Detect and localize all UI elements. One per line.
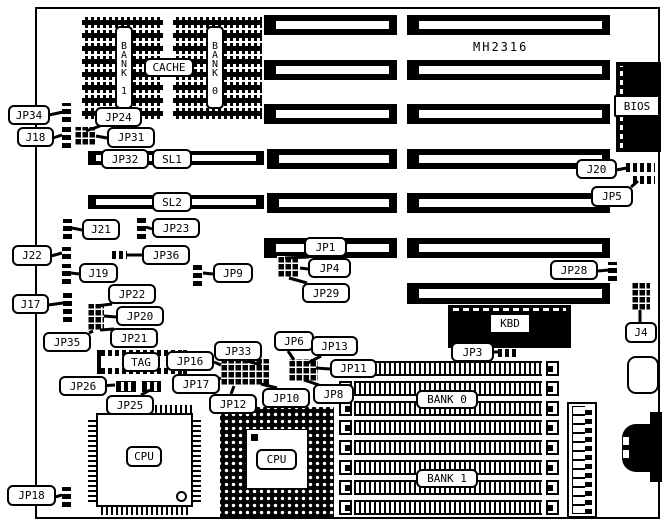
simm-socket xyxy=(337,440,561,456)
label-jp28: JP28 xyxy=(550,260,598,280)
isa-slot-2-long xyxy=(407,60,610,80)
jumper-j19 xyxy=(62,264,71,284)
jumper-jp23 xyxy=(137,217,146,239)
isa-slot-1-long xyxy=(407,15,610,35)
jumper-jp3 xyxy=(498,349,517,357)
label-jp16: JP16 xyxy=(166,351,214,371)
qfp-pins-left xyxy=(88,418,96,502)
label-jp22: JP22 xyxy=(108,284,156,304)
simm-bank1-label: BANK 1 xyxy=(416,469,478,488)
qfp-pins-bottom xyxy=(101,507,188,515)
jumper-jp31-jp24 xyxy=(74,127,96,146)
label-j4: J4 xyxy=(625,322,657,343)
label-jp35: JP35 xyxy=(43,332,91,352)
label-jp26: JP26 xyxy=(59,376,107,396)
label-j18: J18 xyxy=(17,127,54,147)
jumper-jp9 xyxy=(193,265,202,286)
cpu-pga-label: CPU xyxy=(256,449,297,470)
jumper-jp36 xyxy=(112,251,127,259)
label-jp36: JP36 xyxy=(142,245,190,265)
label-jp24: JP24 xyxy=(95,107,142,127)
isa-slot-2-short xyxy=(264,60,397,80)
power-connector xyxy=(567,402,597,518)
label-jp21: JP21 xyxy=(110,328,158,348)
label-jp10: JP10 xyxy=(262,388,310,408)
label-jp4: JP4 xyxy=(308,258,351,278)
tag-label: TAG xyxy=(122,352,160,372)
label-jp1: JP1 xyxy=(304,237,347,257)
jumper-jp18 xyxy=(62,487,71,507)
din-notch xyxy=(623,450,629,458)
label-jp8: JP8 xyxy=(313,384,354,404)
label-jp23: JP23 xyxy=(152,218,200,238)
jumper-jp20-cluster xyxy=(87,304,104,331)
label-jp34: JP34 xyxy=(8,105,50,125)
isa-slot-3-long xyxy=(407,104,610,124)
label-jp31: JP31 xyxy=(107,127,155,148)
kbd-label: KBD xyxy=(489,313,531,334)
label-jp20: JP20 xyxy=(116,306,164,326)
cache-bank1-label: BANK 1 xyxy=(115,26,133,109)
jumper-jp26 xyxy=(116,381,136,392)
cache-chip-row xyxy=(173,108,262,119)
simm-socket xyxy=(337,500,561,516)
jumper-j20 xyxy=(626,163,655,172)
motherboard-diagram: MH2316 BANK 1 BANK 0 CACHE BANK 0 BANK 1… xyxy=(0,0,667,527)
label-jp32: JP32 xyxy=(101,149,149,169)
label-jp29: JP29 xyxy=(302,283,350,303)
jumper-jp16-cluster xyxy=(220,359,270,386)
isa-slot-4-short xyxy=(267,149,397,169)
label-jp17: JP17 xyxy=(172,374,220,394)
label-j21: J21 xyxy=(82,219,120,240)
cache-bank0-label: BANK 0 xyxy=(206,26,224,109)
jumper-j22 xyxy=(62,247,71,259)
label-jp9: JP9 xyxy=(213,263,253,283)
label-jp12: JP12 xyxy=(209,394,257,414)
isa-slot-5-long xyxy=(407,193,610,213)
kbd-chip-dashes xyxy=(453,308,566,311)
label-jp6: JP6 xyxy=(274,331,314,351)
label-j17: J17 xyxy=(12,294,49,314)
jumper-jp25 xyxy=(142,381,161,392)
label-jp13: JP13 xyxy=(311,336,358,356)
isa-slot-5-short xyxy=(267,193,397,213)
pga-pin1-marker xyxy=(251,434,258,441)
qfp-pins-right xyxy=(193,418,201,502)
speaker-outline xyxy=(627,356,659,394)
board-model-text: MH2316 xyxy=(473,40,528,54)
label-sl2: SL2 xyxy=(152,192,192,212)
isa-slot-7-long xyxy=(407,283,610,304)
jumper-jp4-cluster xyxy=(277,256,299,278)
isa-slot-6-long xyxy=(407,238,610,258)
din-notch xyxy=(623,437,629,445)
isa-slot-1-short xyxy=(264,15,397,35)
jumper-jp34 xyxy=(62,103,71,122)
label-j19: J19 xyxy=(79,263,118,283)
label-jp3: JP3 xyxy=(451,342,494,362)
label-j20: J20 xyxy=(576,159,617,179)
label-jp25: JP25 xyxy=(106,395,154,415)
bios-label: BIOS xyxy=(614,95,660,117)
label-jp5: JP5 xyxy=(591,186,633,207)
label-jp11: JP11 xyxy=(330,359,377,378)
jumper-j21 xyxy=(63,219,72,239)
label-j22: J22 xyxy=(12,245,52,266)
label-sl1: SL1 xyxy=(152,149,192,169)
isa-slot-3-short xyxy=(264,104,397,124)
jumper-jp6-cluster xyxy=(288,359,318,382)
jumper-j4 xyxy=(631,282,650,311)
keyboard-din-body xyxy=(622,424,656,472)
simm-bank0-label: BANK 0 xyxy=(416,390,478,409)
simm-socket xyxy=(337,420,561,436)
qfp-pin1-dot xyxy=(176,491,187,502)
cpu-qfp-label: CPU xyxy=(126,446,162,467)
label-jp18: JP18 xyxy=(7,485,56,506)
jumper-jp28 xyxy=(608,262,617,281)
jumper-jp5 xyxy=(633,176,655,184)
label-jp33: JP33 xyxy=(214,341,262,361)
jumper-j18 xyxy=(62,124,71,148)
cache-label: CACHE xyxy=(144,58,194,77)
jumper-j17 xyxy=(63,290,72,322)
